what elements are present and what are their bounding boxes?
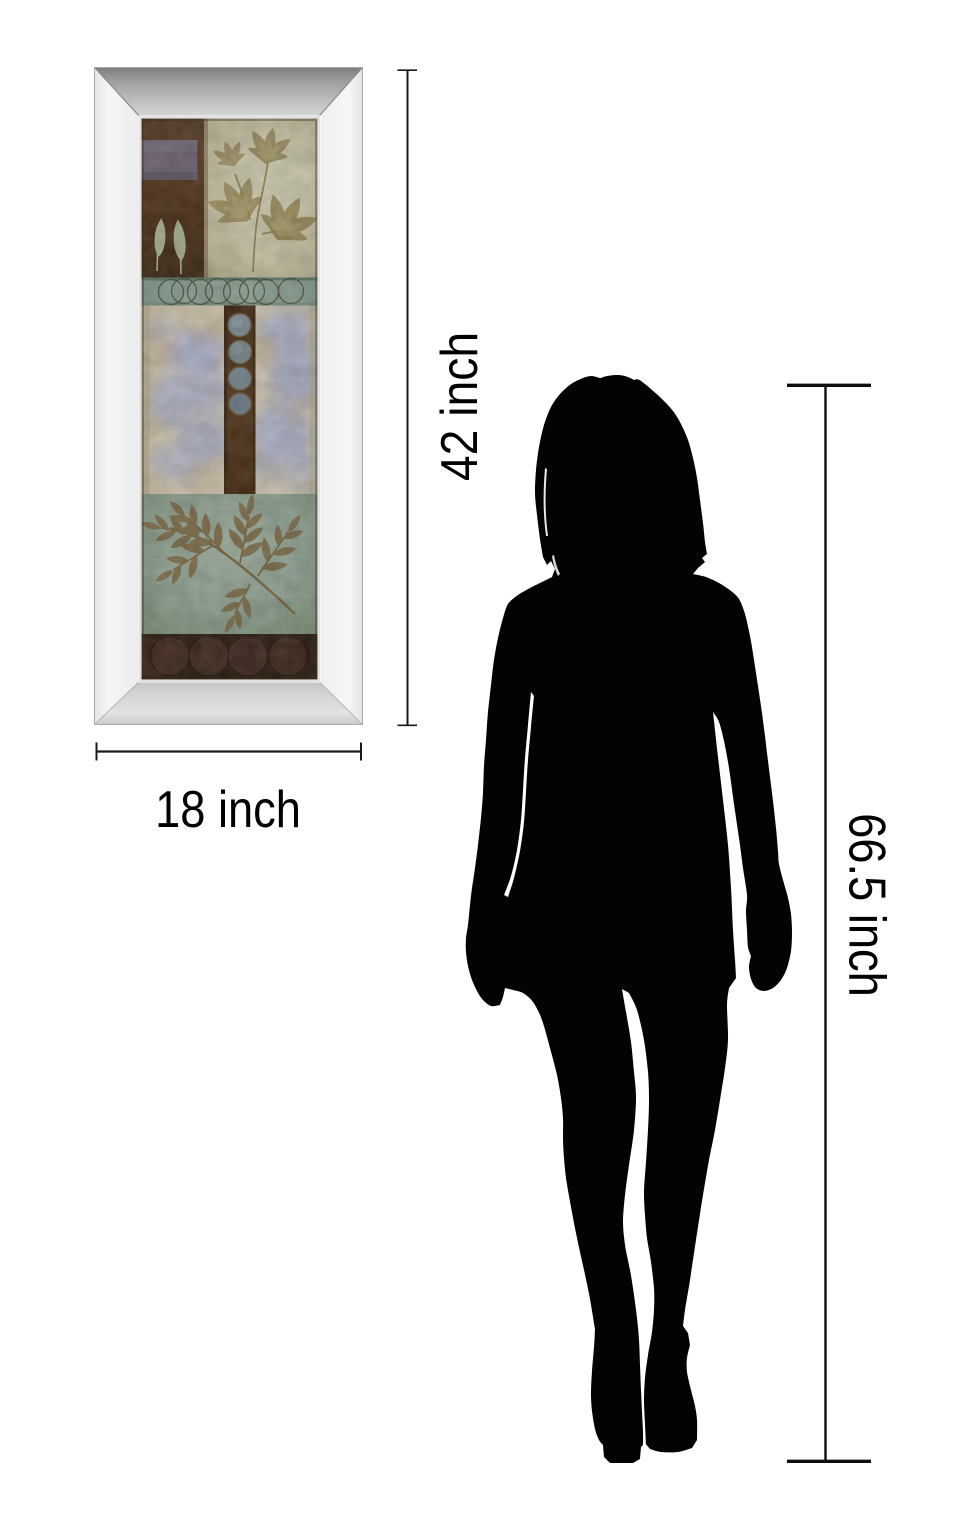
svg-text:66.5 inch: 66.5 inch (838, 813, 896, 997)
svg-text:18 inch: 18 inch (155, 781, 301, 839)
svg-text:42 inch: 42 inch (430, 332, 488, 481)
